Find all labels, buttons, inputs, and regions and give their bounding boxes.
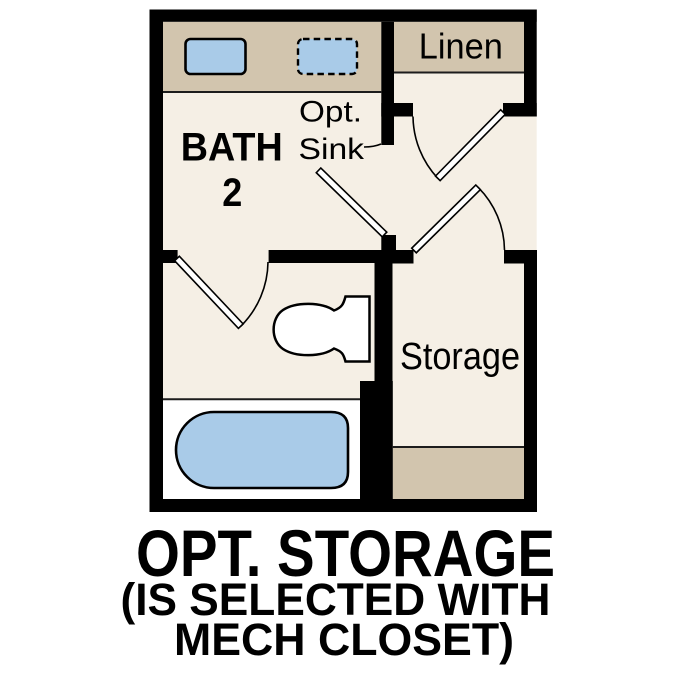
svg-text:Sink: Sink xyxy=(299,133,366,166)
svg-text:2: 2 xyxy=(222,171,242,215)
svg-text:Storage: Storage xyxy=(400,336,520,378)
svg-text:Linen: Linen xyxy=(419,26,503,67)
svg-text:MECH CLOSET): MECH CLOSET) xyxy=(174,614,514,665)
svg-text:Opt.: Opt. xyxy=(299,95,362,128)
svg-text:BATH: BATH xyxy=(181,126,283,170)
